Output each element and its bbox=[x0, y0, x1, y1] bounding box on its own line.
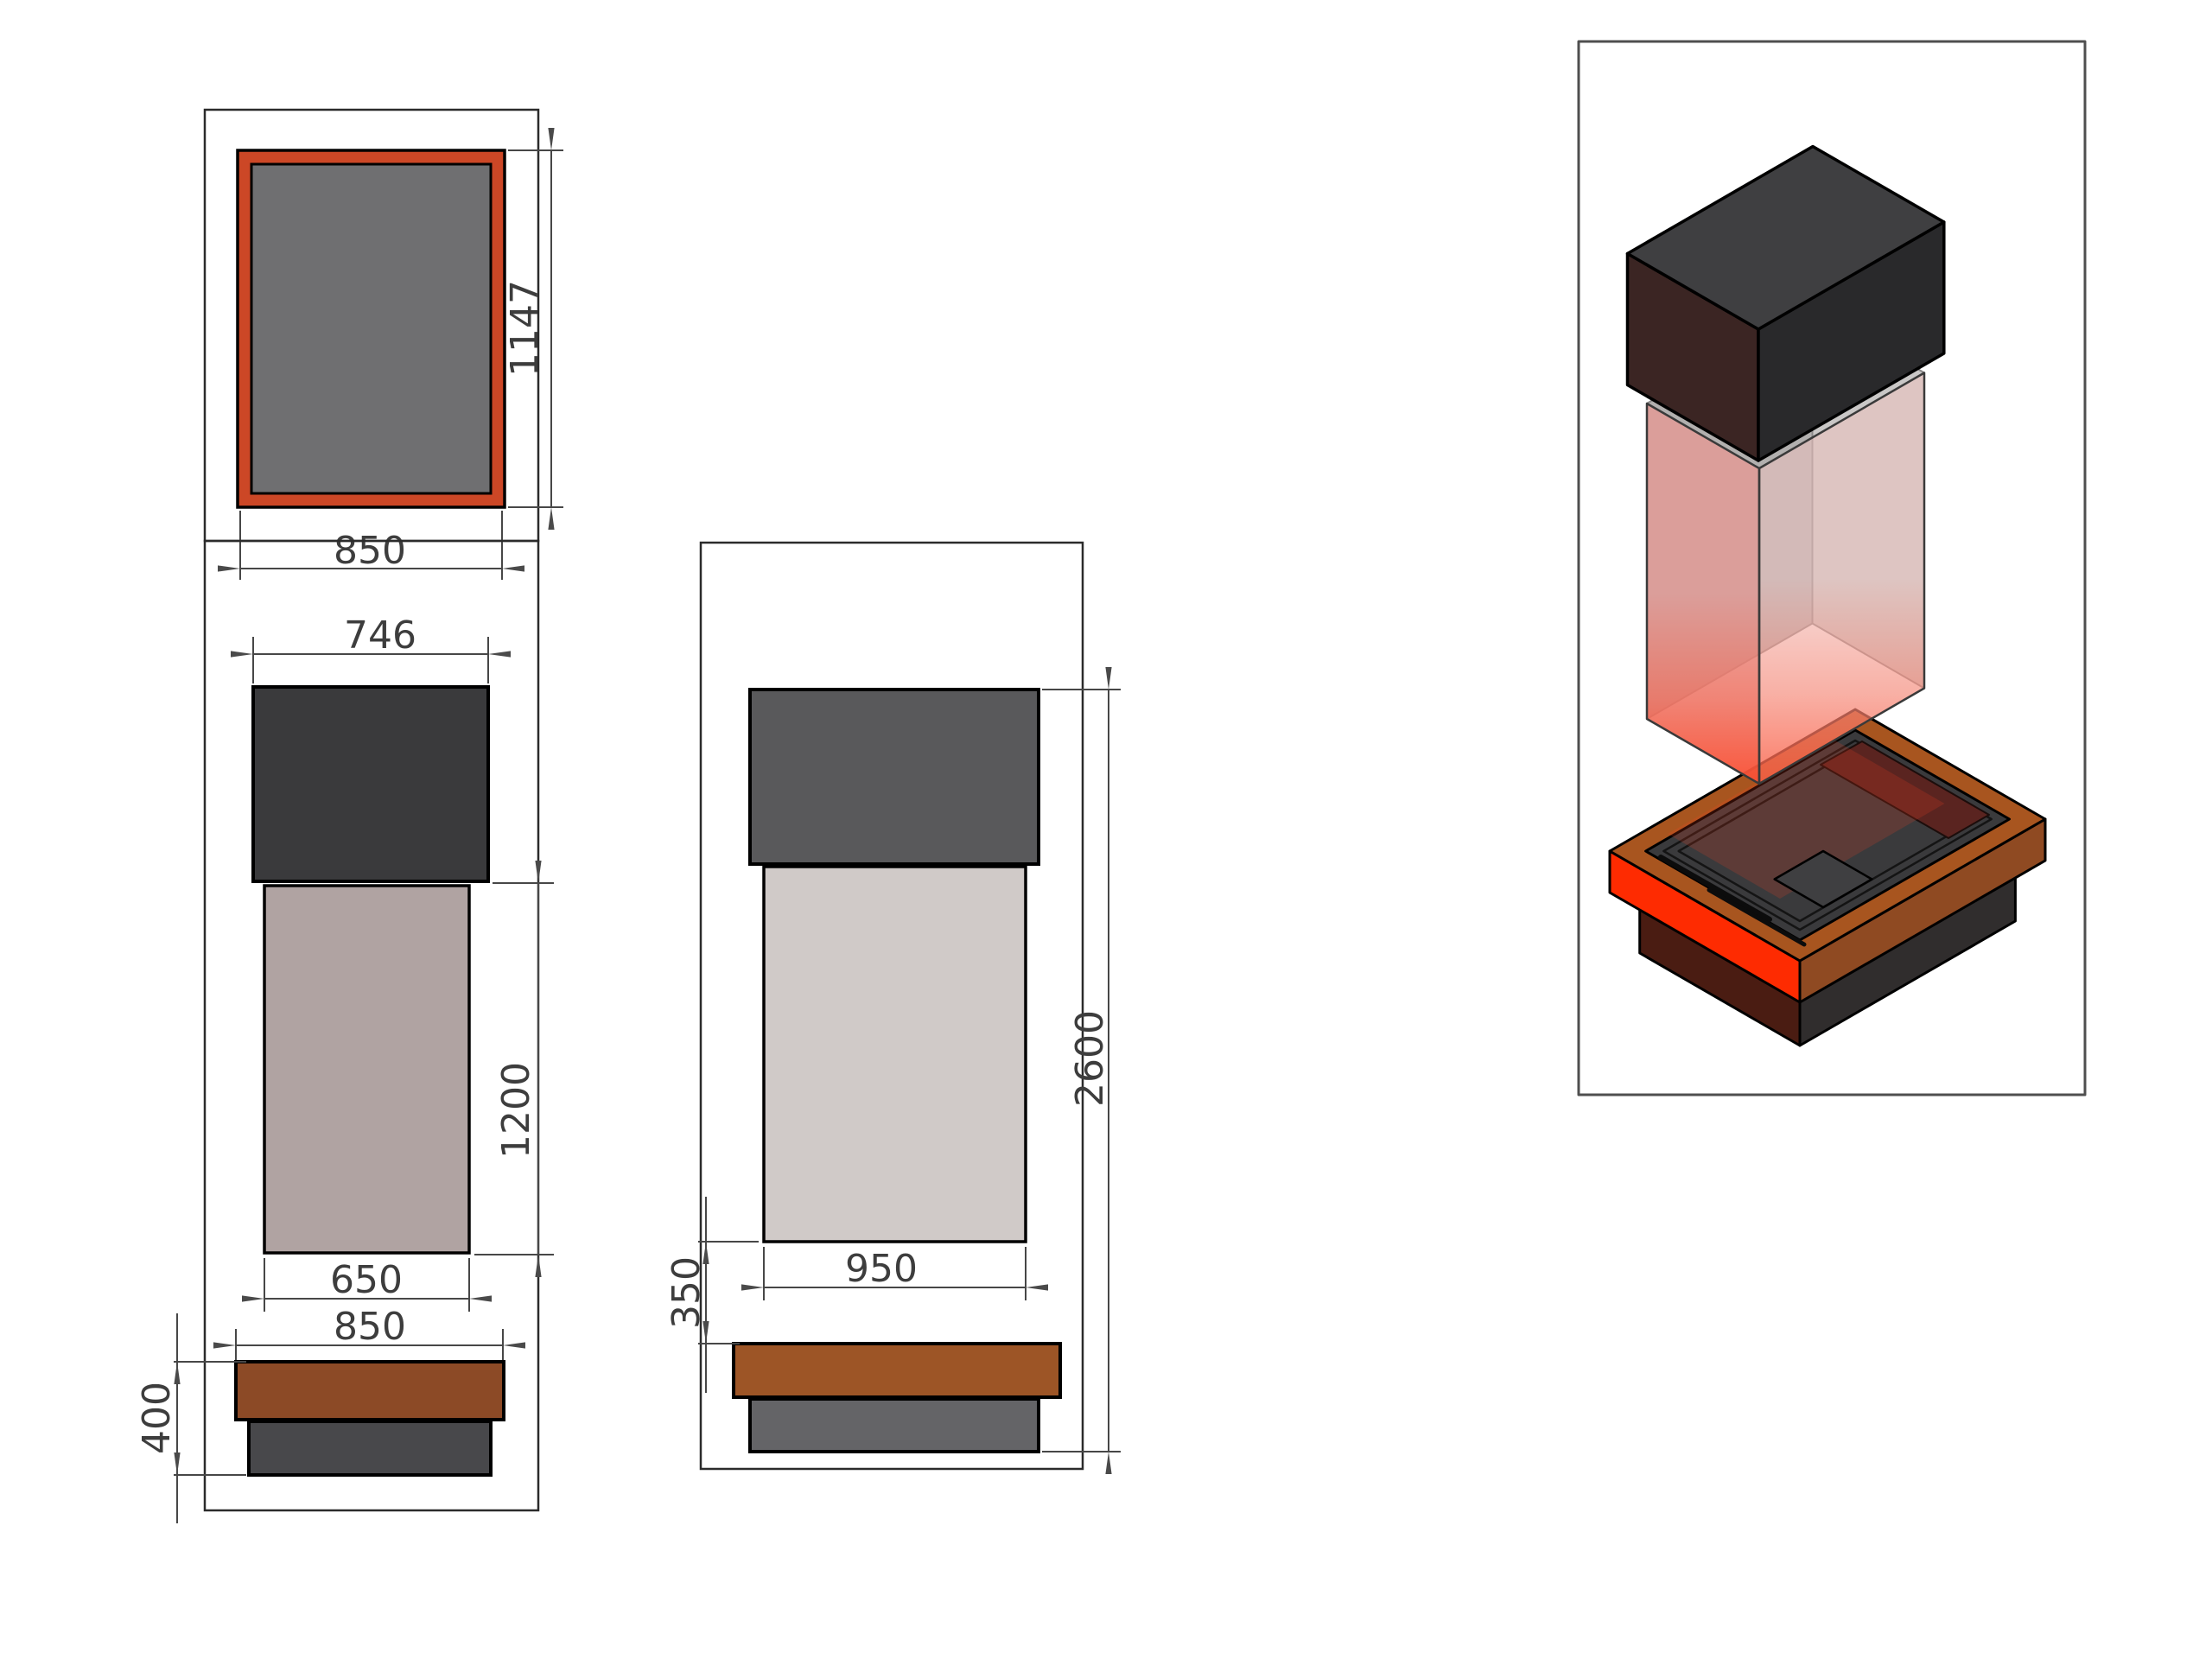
side-base bbox=[750, 1399, 1039, 1452]
dim-side-body-width-label: 950 bbox=[845, 1247, 918, 1291]
dim-front-hood-width-label: 746 bbox=[344, 613, 416, 658]
dim-side-opening-height-label: 350 bbox=[664, 1256, 709, 1329]
cad-drawing: 1147 850 746 1200 bbox=[0, 0, 2212, 1659]
front-body bbox=[264, 886, 469, 1253]
dim-top-width-label: 850 bbox=[334, 529, 406, 573]
dim-front-body-width-label: 650 bbox=[330, 1258, 403, 1302]
isometric-view bbox=[1579, 41, 2085, 1095]
dim-front-base-width-label: 850 bbox=[334, 1305, 406, 1349]
top-plate-opening bbox=[251, 164, 491, 493]
dim-top-depth-label: 1147 bbox=[503, 280, 547, 377]
side-view: 950 350 2600 bbox=[664, 543, 1121, 1469]
iso-glass-left-glow bbox=[1647, 404, 1759, 784]
drawing-sheet: 1147 850 746 1200 bbox=[0, 0, 2212, 1659]
top-view: 1147 850 bbox=[205, 110, 563, 580]
side-mantel-bar bbox=[734, 1344, 1060, 1397]
front-hood bbox=[253, 687, 488, 881]
front-view: 746 1200 650 850 bbox=[135, 541, 554, 1523]
dim-front-body-height-label: 1200 bbox=[494, 1062, 538, 1159]
front-mantel-bar bbox=[236, 1362, 504, 1420]
side-body bbox=[764, 867, 1026, 1242]
side-hood bbox=[750, 690, 1039, 864]
front-base bbox=[249, 1421, 491, 1475]
dim-front-base-height-label: 400 bbox=[135, 1382, 179, 1454]
dim-side-total-height-label: 2600 bbox=[1068, 1010, 1112, 1107]
